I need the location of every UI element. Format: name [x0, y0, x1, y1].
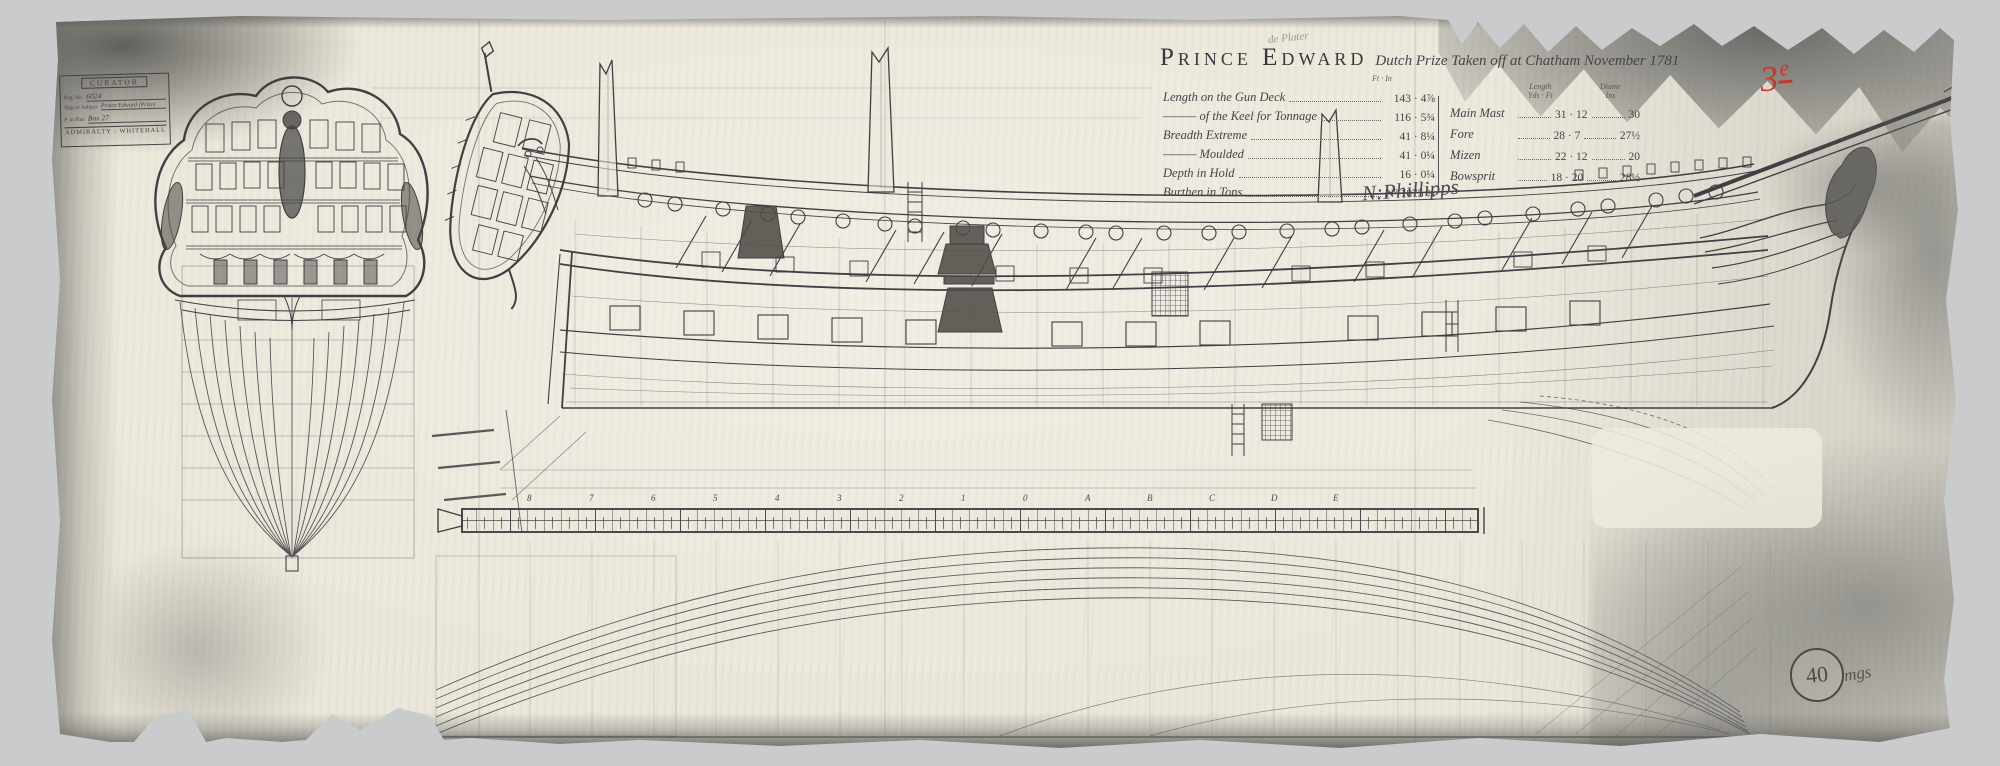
plan-linework [0, 0, 2000, 766]
crease-line [478, 20, 480, 746]
station-mark: 0 [1023, 493, 1028, 503]
figurehead [1826, 147, 1877, 238]
dim-label: ——— of the Keel for Tonnage [1163, 109, 1317, 124]
station-mark: 7 [589, 493, 594, 503]
station-mark: 6 [651, 493, 656, 503]
stern-brackets [214, 260, 377, 284]
dim-label: ——— Moulded [1163, 147, 1244, 162]
title-block: Prince EdwardDutch Prize Taken off at Ch… [1160, 44, 1630, 72]
red-mark-superscript: e [1776, 55, 1792, 84]
scale-bar [438, 507, 1484, 534]
station-mark: D [1271, 493, 1278, 503]
station-mark: B [1147, 493, 1153, 503]
dim-label: Depth in Hold [1163, 166, 1235, 181]
mast-length-header: LengthYds · Ft [1528, 82, 1553, 100]
mast-label: Fore [1450, 127, 1514, 142]
plan-station-lines [530, 540, 1770, 735]
station-mark: 5 [713, 493, 718, 503]
mast-row: Bowsprit18 · 2028½ [1450, 163, 1640, 184]
hatch-grating-lower [1262, 404, 1292, 440]
station-mark: 1 [961, 493, 966, 503]
mast-row: Mizen22 · 1220 [1450, 142, 1640, 163]
stamp-plan-value: Box 27 [88, 111, 167, 123]
capstans [738, 206, 1002, 332]
stamp-subject-value: Prince Edward (Prize) [101, 102, 166, 111]
mast-diam: 20 [1629, 151, 1641, 163]
mast-length: 22 · 12 [1555, 151, 1588, 163]
mast-label: Mizen [1450, 148, 1514, 163]
stern-elevation-view [155, 77, 427, 330]
mast-diam-header: DiamrIns [1600, 82, 1621, 100]
dimension-row: Breadth Extreme41 · 8¼ [1163, 124, 1435, 143]
stamp-reg-value: 6024 [86, 89, 166, 101]
stamp-subject-label: Ship or Subject [64, 105, 98, 111]
dimension-row: ——— Moulded41 · 0¼ [1163, 143, 1435, 162]
ship-plan-scan: CURATOR Reg. No. 6024 Ship or Subject Pr… [0, 0, 2000, 766]
mast-length: 31 · 12 [1555, 109, 1588, 121]
stamp-header: CURATOR [81, 76, 147, 89]
dim-label: Burthen in Tons [1163, 185, 1242, 200]
dim-col-header: Ft · In [1372, 74, 1392, 83]
stamp-footer: ADMIRALTY : WHITEHALL [64, 124, 166, 136]
red-archive-mark: 3e [1758, 55, 1793, 101]
station-mark: 2 [899, 493, 904, 503]
crease-line [884, 20, 886, 746]
dimension-row: Length on the Gun Deck143 · 4⅞ [1163, 86, 1435, 105]
ship-plan-sheet: CURATOR Reg. No. 6024 Ship or Subject Pr… [0, 0, 2000, 766]
bowsprit [1694, 86, 1958, 204]
dim-value: 41 · 0¼ [1385, 150, 1435, 162]
station-mark: 4 [775, 493, 780, 503]
station-mark: 8 [527, 493, 532, 503]
pencil-scribble: mgs [1843, 662, 1873, 686]
dimension-row: ——— of the Keel for Tonnage116 · 5¾ [1163, 105, 1435, 124]
stamp-reg-label: Reg. No. [64, 96, 84, 102]
page-number-text: 40 [1805, 661, 1830, 689]
masts-table: Main Mast31 · 1230 Fore28 · 727½ Mizen22… [1450, 100, 1640, 184]
station-mark: E [1333, 493, 1339, 503]
dim-label: Breadth Extreme [1163, 128, 1247, 143]
station-mark: A [1085, 493, 1091, 503]
mast-diam: 27½ [1620, 130, 1640, 142]
bow-waterline-sweeps [1488, 396, 1772, 508]
station-mark: C [1209, 493, 1215, 503]
dim-value: 116 · 5¾ [1385, 112, 1435, 124]
title-subtitle: Dutch Prize Taken off at Chatham Novembe… [1375, 53, 1679, 69]
mast-length: 18 · 20 [1551, 172, 1584, 184]
mast-label: Bowsprit [1450, 169, 1514, 184]
half-breadth-plan [430, 540, 1772, 737]
stern-statue [279, 126, 305, 218]
body-plan [180, 266, 414, 571]
dim-label: Length on the Gun Deck [1163, 90, 1285, 105]
ship-name: Prince Edward [1160, 44, 1367, 71]
curator-stamp: CURATOR Reg. No. 6024 Ship or Subject Pr… [59, 73, 171, 148]
mast-row: Fore28 · 727½ [1450, 121, 1640, 142]
hatch-grating [1152, 272, 1188, 316]
quarter-gallery-view [422, 40, 592, 313]
mast-label: Main Mast [1450, 106, 1514, 121]
mast-row: Main Mast31 · 1230 [1450, 100, 1640, 121]
dim-value: 143 · 4⅞ [1385, 93, 1435, 105]
dim-value: 41 · 8¼ [1385, 131, 1435, 143]
mast-diam: 30 [1629, 109, 1641, 121]
mast-diam: 28½ [1620, 172, 1640, 184]
station-mark: 3 [837, 493, 842, 503]
stamp-plan-label: P. in Plan [64, 118, 85, 124]
mast-length: 28 · 7 [1554, 130, 1581, 142]
